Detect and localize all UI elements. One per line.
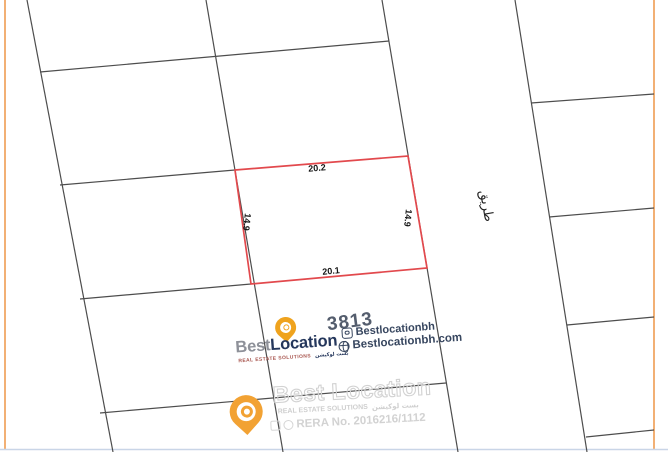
instagram-icon-watermark bbox=[270, 420, 281, 431]
watermark-block: Best Location REAL ESTATE SOLUTIONS بست … bbox=[220, 374, 468, 452]
dimension-bottom: 20.1 bbox=[322, 265, 340, 277]
globe-icon bbox=[338, 340, 350, 352]
watermark-pin-icon bbox=[223, 388, 270, 435]
plot-map-image: 20.2 20.1 14.9 14.9 طريق 3813 BestLocati… bbox=[0, 0, 668, 452]
globe-icon-watermark bbox=[283, 420, 294, 431]
dimension-right: 14.9 bbox=[402, 209, 414, 227]
brand-name-best: Best bbox=[235, 336, 271, 356]
dimension-top: 20.2 bbox=[308, 162, 326, 173]
rera-number-text: RERA No. 2016216/1112 bbox=[296, 412, 426, 431]
instagram-icon bbox=[341, 327, 353, 339]
brand-name-location: Location bbox=[270, 331, 338, 354]
dimension-left: 14.9 bbox=[241, 213, 253, 231]
watermark-tagline-ar: بست لوكيشن bbox=[372, 401, 419, 411]
